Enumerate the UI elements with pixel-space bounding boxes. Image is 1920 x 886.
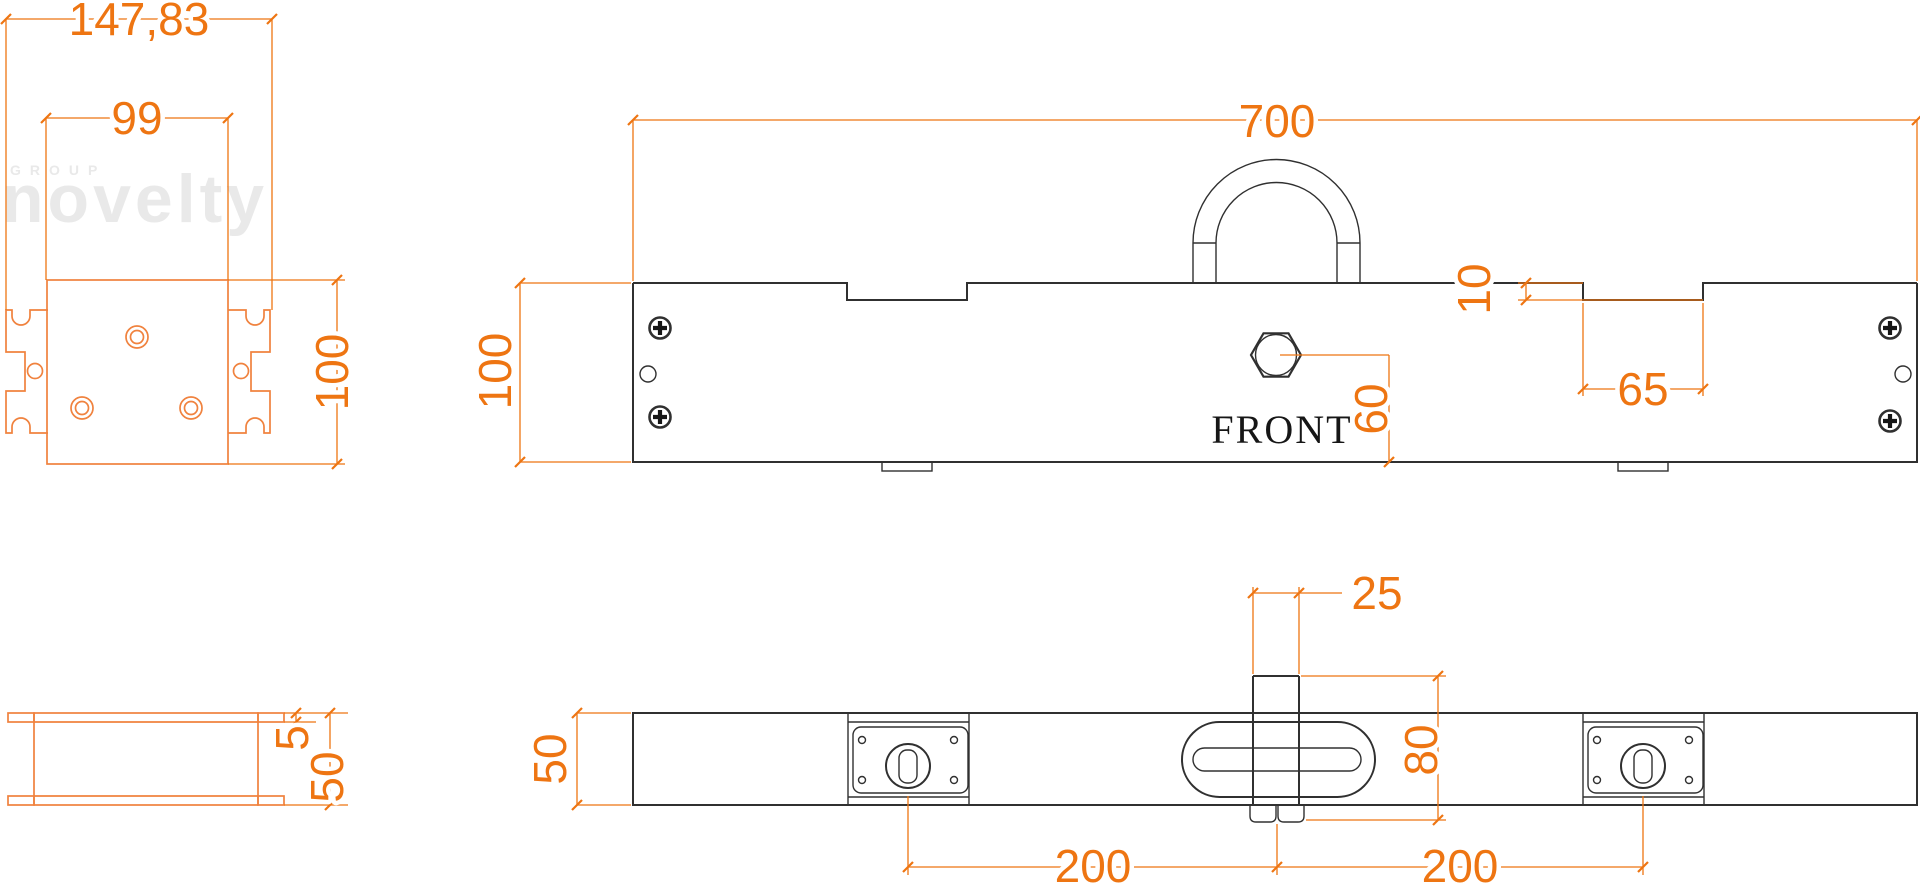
dim-boss-height-text: 60 (1345, 383, 1397, 434)
plate-screw-hole (1686, 777, 1693, 784)
dim-end-depth-text: 50 (301, 751, 353, 802)
bracket-pin-left (28, 364, 43, 379)
technical-drawing: GROUP novelty (0, 0, 1920, 886)
phillips-cross-icon (1883, 321, 1897, 335)
dim-tab-thickness-text: 5 (266, 725, 318, 751)
pin-hole-front-left (640, 366, 656, 382)
dim-plan-depth-text: 50 (524, 733, 576, 784)
dim-notch-depth-lines (1518, 283, 1703, 300)
claw-plate-outline (47, 280, 228, 464)
phillips-cross-icon (653, 410, 667, 424)
bracket-pin-right (234, 364, 249, 379)
dim-stem-span-text: 80 (1395, 724, 1447, 775)
end-body-outline (34, 713, 258, 805)
dim-notch-width-text: 65 (1617, 363, 1668, 415)
plate-hole-top-inner (131, 331, 144, 344)
plate-hole-left-inner (76, 402, 89, 415)
dim-stem-width-text: 25 (1351, 567, 1402, 619)
screw-front-right-top (1880, 318, 1901, 339)
dim-height-left-text: 100 (306, 334, 358, 411)
front-view-label: FRONT (1211, 407, 1352, 452)
plate-screw-hole (951, 737, 958, 744)
plate-hole-right-outer (180, 397, 202, 419)
plan-seam-lines (848, 713, 1704, 805)
plate-screw-hole (1594, 777, 1601, 784)
dim-plan-depth-lines (577, 713, 631, 805)
plate-screw-hole (1594, 737, 1601, 744)
stem-fin-right (1278, 805, 1304, 822)
bottom-tab-right (1618, 462, 1668, 471)
end-plate-lines (34, 722, 258, 796)
plate-screw-hole (1686, 737, 1693, 744)
phillips-cross-icon (1883, 414, 1897, 428)
screw-front-left-bottom (650, 407, 671, 428)
plan-view (633, 676, 1917, 822)
plate-screw-hole (951, 777, 958, 784)
dim-beam-length-text: 700 (1239, 95, 1316, 147)
pin-hole-front-right (1895, 366, 1911, 382)
beam-top-edge (633, 283, 1917, 300)
plate-slot-left (899, 750, 917, 783)
plate-hole-right-inner (185, 402, 198, 415)
screw-front-left-top (650, 318, 671, 339)
dim-beam-height-text: 100 (469, 333, 521, 410)
end-view-bottom-left (8, 713, 284, 805)
plate-screw-hole (859, 777, 866, 784)
stem-fin-left (1250, 805, 1276, 822)
dimensions: 147,83 99 100 700 100 10 65 60 25 (1, 0, 1920, 886)
end-tab-bottom-right (258, 796, 284, 805)
front-view: FRONT (633, 160, 1917, 472)
dim-claw-overall-text: 147,83 (69, 0, 210, 45)
center-capsule-outer (1182, 722, 1375, 797)
end-tab-bottom-left (8, 796, 34, 805)
plate-slot-right (1634, 750, 1652, 783)
plate-hole-left-outer (71, 397, 93, 419)
plate-hole-top-outer (126, 326, 148, 348)
shackle-outer (1193, 160, 1360, 284)
dim-plate-width-text: 99 (111, 92, 162, 144)
shackle-inner (1216, 182, 1337, 284)
end-view-top-left (6, 280, 270, 464)
plate-screw-hole (859, 737, 866, 744)
bottom-tab-left (882, 462, 932, 471)
dim-stem-width-lines (1253, 587, 1342, 674)
dim-notch-depth-text: 10 (1448, 263, 1500, 314)
dim-pitch-left-text: 200 (1055, 840, 1132, 886)
phillips-cross-icon (653, 321, 667, 335)
center-capsule-slot (1193, 748, 1361, 771)
center-stem (1253, 676, 1299, 805)
screw-front-right-bottom (1880, 411, 1901, 432)
end-tab-top-left (8, 713, 34, 722)
plan-strip-lines (848, 722, 1704, 797)
dim-beam-height-lines (520, 283, 631, 462)
dim-pitch-right-text: 200 (1422, 840, 1499, 886)
drawing-canvas: GROUP novelty (0, 0, 1920, 886)
end-tab-top-right (258, 713, 284, 722)
plan-beam-outline (633, 713, 1917, 805)
